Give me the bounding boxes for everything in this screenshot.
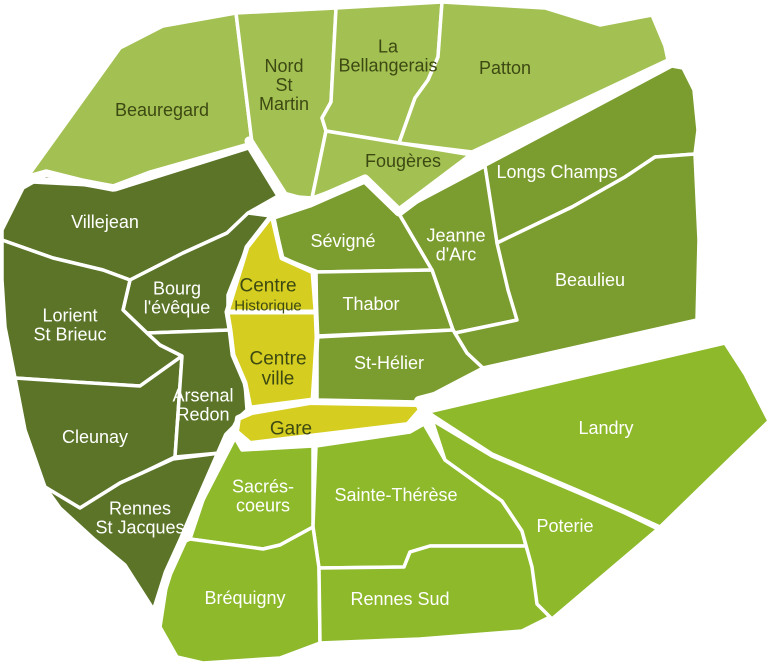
district-label-st-helier: St-Hélier	[354, 353, 424, 373]
district-label-brequigny: Bréquigny	[204, 588, 285, 608]
district-label-landry: Landry	[578, 418, 633, 438]
district-label-longs-champs: Longs Champs	[496, 162, 617, 182]
map-canvas: BeauregardNordStMartinLaBellangeraisPatt…	[0, 0, 784, 667]
district-label-cleunay: Cleunay	[62, 427, 128, 447]
district-label-rennes-sud: Rennes Sud	[350, 589, 449, 609]
rennes-districts-map: BeauregardNordStMartinLaBellangeraisPatt…	[0, 0, 784, 667]
district-label-gare: Gare	[270, 419, 312, 440]
district-label-centre-historique: CentreHistorique	[234, 276, 302, 315]
district-label-bourg-leveque: Bourgl'évêque	[144, 279, 211, 318]
district-label-sacres-coeurs: Sacrés-coeurs	[232, 477, 294, 516]
district-label-patton: Patton	[479, 58, 531, 78]
district-label-fougeres: Fougères	[365, 151, 441, 171]
district-label-sainte-therese: Sainte-Thérèse	[334, 485, 457, 505]
district-label-lorient-st-brieuc: LorientSt Brieuc	[33, 306, 106, 345]
district-label-thabor: Thabor	[342, 294, 399, 314]
district-label-beaulieu: Beaulieu	[555, 270, 625, 290]
district-label-villejean: Villejean	[71, 212, 139, 232]
district-label-arsenal-redon: ArsenalRedon	[172, 386, 233, 425]
district-label-beauregard: Beauregard	[115, 100, 209, 120]
district-label-sevigne: Sévigné	[310, 231, 375, 251]
district-label-poterie: Poterie	[536, 516, 593, 536]
